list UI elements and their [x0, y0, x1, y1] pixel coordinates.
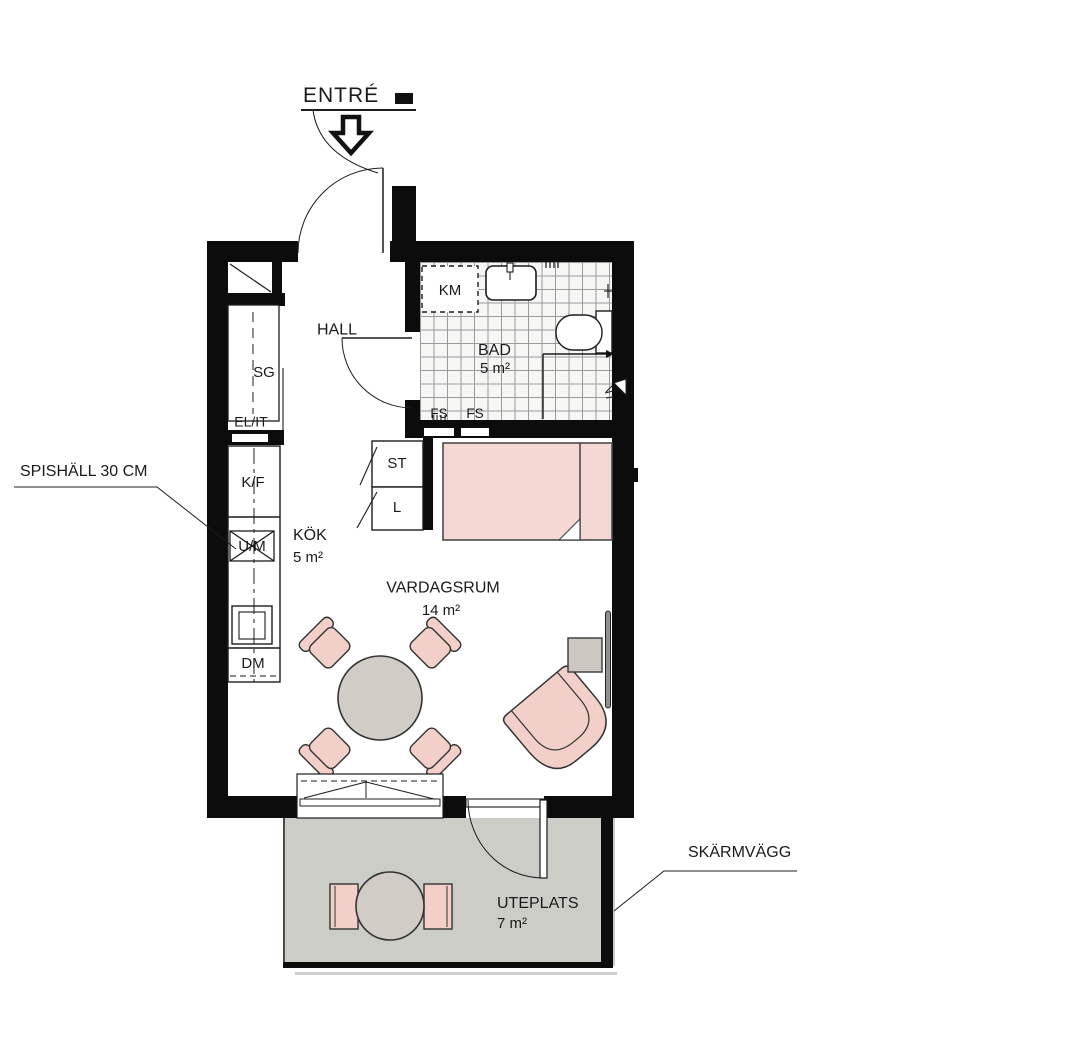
bed: [443, 443, 612, 540]
entrance-arrow-icon: [333, 117, 369, 153]
dining-chair: [405, 723, 463, 781]
fixture-label-st: ST: [387, 456, 406, 472]
room-area-vardagsrum: 14 m²: [422, 603, 460, 619]
wall-segment: [544, 796, 634, 818]
shaft-diagonal: [230, 264, 271, 292]
bathroom-door: [342, 338, 412, 408]
wall-segment: [442, 796, 466, 818]
wall-segment: [633, 468, 638, 482]
wall-segment: [207, 796, 298, 818]
tv: [606, 611, 611, 708]
fixture-label-kf: K/F: [241, 475, 264, 491]
room-label-bad: BAD: [478, 343, 511, 360]
room-label-hall: HALL: [317, 323, 357, 340]
room-area-kok: 5 m²: [293, 550, 323, 566]
entre-marker-icon: [395, 93, 413, 104]
fixture-label-sg: SG: [253, 365, 275, 381]
wall-segment: [390, 241, 634, 262]
room-label-vardagsrum: VARDAGSRUM: [386, 581, 500, 598]
room-label-uteplats: UTEPLATS: [497, 896, 579, 913]
wall-segment: [423, 438, 433, 530]
annotation-hob: SPISHÄLL 30 CM: [20, 464, 147, 481]
dining-table: [338, 656, 422, 740]
wall-segment: [392, 186, 416, 246]
wall-segment: [405, 262, 420, 332]
annotation-screen-wall: SKÄRMVÄGG: [688, 845, 791, 862]
kitchen-sink: [232, 606, 272, 644]
entrance-label: ENTRÉ: [303, 85, 379, 107]
room-label-kok: KÖK: [293, 528, 327, 545]
patio-floor: [283, 818, 615, 966]
fixture-label-fs: FS: [466, 407, 483, 421]
armchair: [501, 664, 618, 781]
patio-edge: [283, 962, 613, 968]
cabinet-front: [232, 434, 268, 442]
window-symbol: [297, 774, 443, 818]
wall-segment: [272, 262, 282, 306]
wall-segment: [207, 241, 228, 818]
wall-segment: [612, 241, 634, 818]
fs-window: [424, 428, 454, 436]
screen-wall: [601, 810, 613, 966]
floor-plan: ENTRÉ HALL KM BAD 5 m² FS FS SG EL/IT K/…: [0, 0, 1072, 1058]
fixture-label-km: KM: [439, 283, 462, 299]
fixture-label-um: U/M: [238, 539, 266, 555]
fixture-label-dm: DM: [241, 656, 264, 672]
room-area-uteplats: 7 m²: [497, 916, 527, 932]
dining-chair: [297, 723, 355, 781]
leader-screen-wall: [614, 871, 797, 911]
leader-hob: [14, 487, 236, 549]
dining-chair: [297, 615, 355, 673]
dining-chair: [405, 615, 463, 673]
entrance-door: [298, 110, 383, 253]
patio-shadow: [295, 972, 617, 975]
fixture-label-l: L: [393, 500, 401, 516]
fixture-label-fs: FS: [430, 407, 447, 421]
fs-window: [461, 428, 489, 436]
side-table: [568, 638, 602, 672]
room-area-bad: 5 m²: [480, 361, 510, 377]
fixture-label-elit: EL/IT: [234, 415, 267, 430]
